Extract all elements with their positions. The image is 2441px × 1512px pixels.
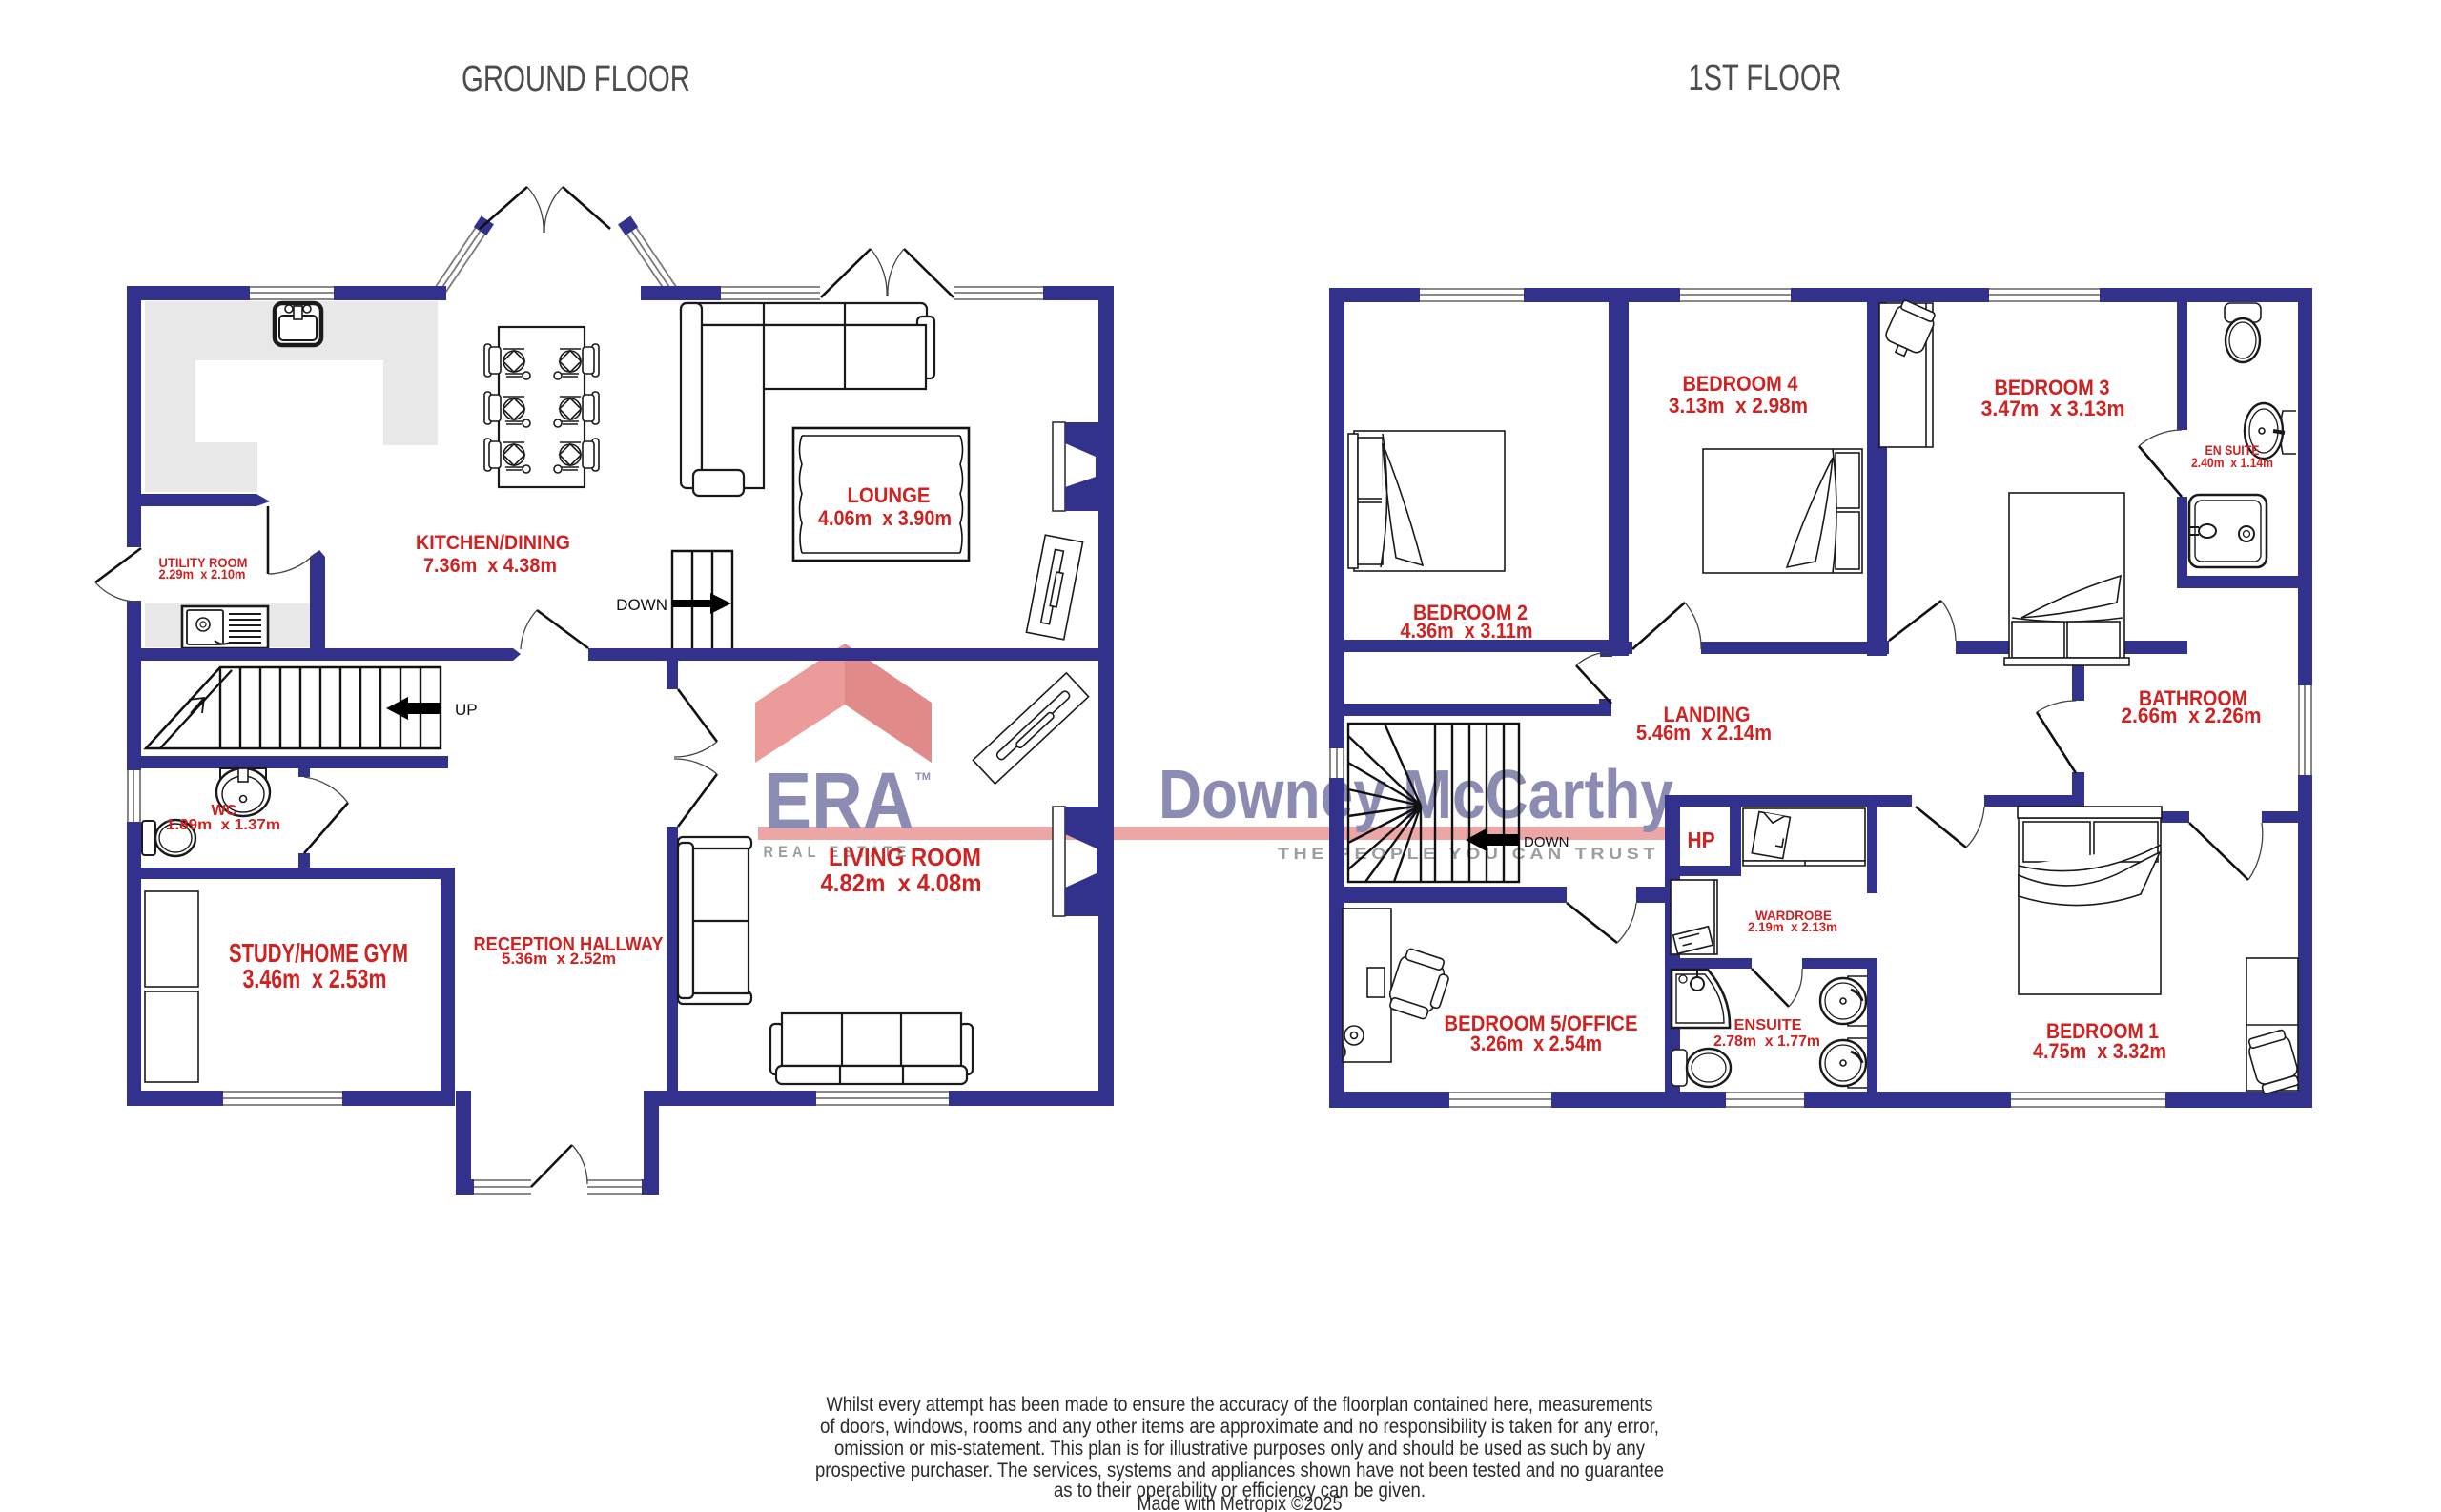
svg-text:3.46m x 2.53m: 3.46m x 2.53m	[243, 964, 387, 993]
svg-text:5.36m x 2.52m: 5.36m x 2.52m	[502, 950, 616, 968]
svg-text:LOUNGE: LOUNGE	[848, 483, 931, 507]
svg-text:TM: TM	[915, 771, 931, 783]
svg-text:4.36m x 3.11m: 4.36m x 3.11m	[1401, 619, 1533, 643]
svg-text:of doors, windows, rooms and a: of doors, windows, rooms and any other i…	[820, 1416, 1659, 1438]
svg-text:LIVING ROOM: LIVING ROOM	[829, 843, 981, 871]
svg-text:2.19m x 2.13m: 2.19m x 2.13m	[1748, 919, 1837, 934]
svg-text:HP: HP	[1688, 828, 1715, 852]
svg-text:GROUND FLOOR: GROUND FLOOR	[462, 59, 690, 99]
svg-text:4.06m x 3.90m: 4.06m x 3.90m	[818, 506, 952, 530]
svg-text:omission or mis-statement. Thi: omission or mis-statement. This plan is …	[834, 1438, 1645, 1460]
svg-text:BEDROOM 4: BEDROOM 4	[1683, 372, 1799, 396]
svg-text:KITCHEN/DINING: KITCHEN/DINING	[416, 532, 570, 554]
svg-text:2.78m x 1.77m: 2.78m x 1.77m	[1713, 1033, 1820, 1050]
svg-text:Made with Metropix ©2025: Made with Metropix ©2025	[1138, 1493, 1343, 1512]
svg-text:2.29m x 2.10m: 2.29m x 2.10m	[159, 566, 246, 582]
svg-text:ERA: ERA	[765, 756, 914, 846]
svg-text:2.40m x 1.14m: 2.40m x 1.14m	[2191, 455, 2273, 470]
svg-text:4.75m x 3.32m: 4.75m x 3.32m	[2033, 1039, 2166, 1063]
svg-text:3.13m x 2.98m: 3.13m x 2.98m	[1669, 394, 1808, 418]
svg-text:7.36m x 4.38m: 7.36m x 4.38m	[423, 555, 557, 577]
svg-text:2.66m x 2.26m: 2.66m x 2.26m	[2122, 704, 2262, 727]
svg-text:Whilst every attempt has been: Whilst every attempt has been made to en…	[827, 1394, 1653, 1416]
svg-text:prospective purchaser. The ser: prospective purchaser. The services, sys…	[815, 1460, 1664, 1481]
svg-text:1ST FLOOR: 1ST FLOOR	[1689, 58, 1842, 98]
svg-text:1.89m x 1.37m: 1.89m x 1.37m	[166, 817, 280, 833]
svg-text:3.26m x 2.54m: 3.26m x 2.54m	[1470, 1032, 1602, 1055]
svg-text:DOWN: DOWN	[1524, 834, 1569, 850]
svg-text:ENSUITE: ENSUITE	[1734, 1017, 1802, 1033]
svg-text:4.82m x 4.08m: 4.82m x 4.08m	[821, 868, 982, 897]
svg-text:UP: UP	[455, 701, 478, 719]
svg-text:DOWN: DOWN	[616, 596, 667, 614]
svg-text:3.47m x 3.13m: 3.47m x 3.13m	[1981, 397, 2125, 420]
svg-text:5.46m x 2.14m: 5.46m x 2.14m	[1636, 721, 1772, 745]
